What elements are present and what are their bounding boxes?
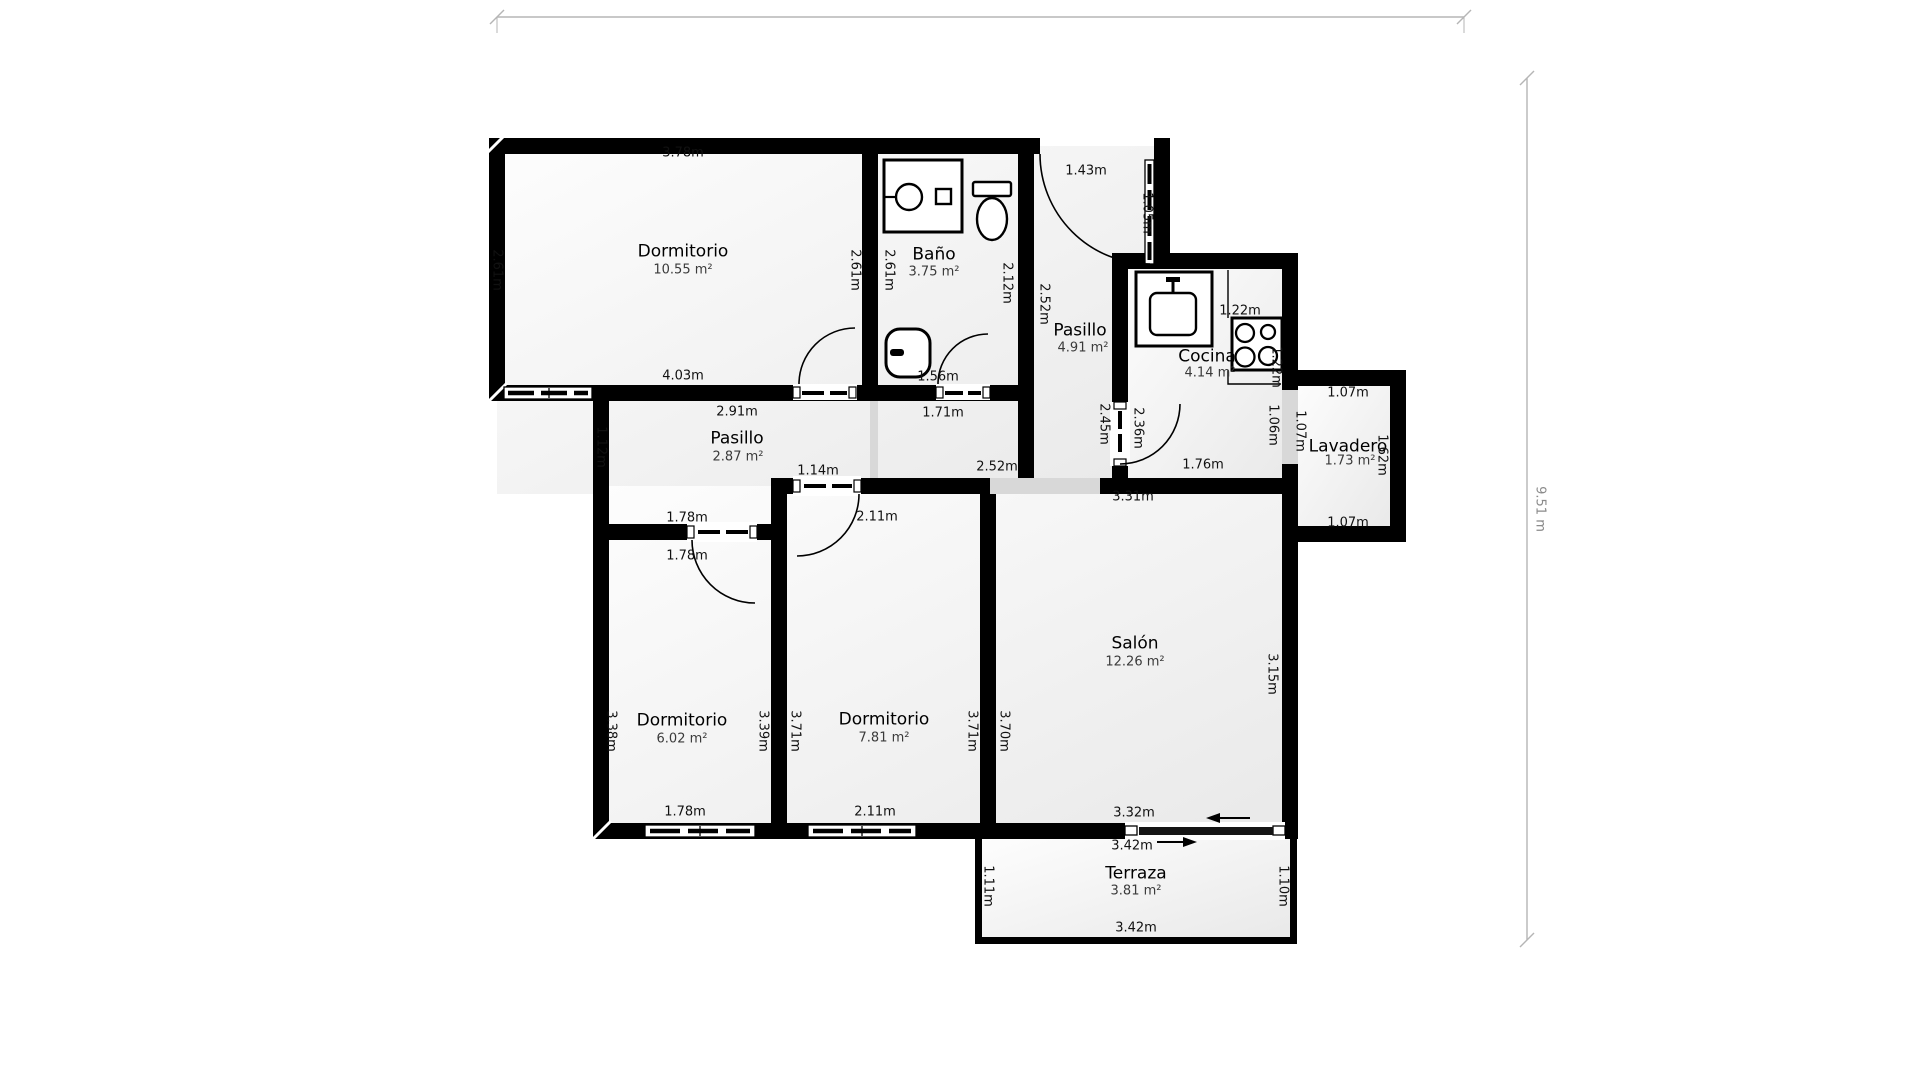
dim-lavadero-bottom: 1.07m	[1327, 517, 1369, 530]
toilet-icon	[973, 182, 1011, 240]
dimension-line-top	[490, 10, 1471, 33]
dim-cocina-right-bottom: 1.06m	[1267, 404, 1280, 446]
dim-pasillo-left: 1.12m	[595, 426, 608, 468]
dim-salon-slider: 3.42m	[1111, 840, 1153, 853]
dim-entrada-left: 2.52m	[1038, 283, 1051, 325]
dim-lavadero-top: 1.07m	[1327, 387, 1369, 400]
dim-dorm3-top: 2.11m	[856, 511, 898, 524]
room-area-bano: 3.75 m²	[909, 266, 960, 279]
room-name-dorm3: Dormitorio	[839, 712, 930, 729]
dim-entrada-top: 1.43m	[1065, 165, 1107, 178]
room-area-terraza: 3.81 m²	[1111, 885, 1162, 898]
dim-dorm-principal-bottom: 4.03m	[662, 370, 704, 383]
room-area-lavadero: 1.73 m²	[1325, 455, 1376, 468]
room-area-entrada: 4.91 m²	[1058, 342, 1109, 355]
dim-cocina-left: 2.36m	[1132, 407, 1145, 449]
dim-bano-right: 2.12m	[1001, 262, 1014, 304]
room-name-cocina: Cocina	[1178, 349, 1236, 366]
dim-salon-opening: 2.52m	[976, 461, 1018, 474]
dim-corridor-bano: 1.71m	[922, 407, 964, 420]
room-name-dorm-principal: Dormitorio	[638, 244, 729, 261]
dim-pasillo-door-b: 1.78m	[666, 512, 708, 525]
dim-dorm3-bottom: 2.11m	[854, 806, 896, 819]
dim-dorm2-left: 3.38m	[605, 710, 618, 752]
dim-dorm-principal-top: 3.78m	[662, 147, 704, 160]
room-name-pasillo: Pasillo	[710, 431, 763, 448]
room-area-dorm-principal: 10.55 m²	[653, 264, 712, 277]
dim-pasillo-top: 2.91m	[716, 406, 758, 419]
room-name-salon: Salón	[1111, 636, 1158, 653]
room-area-dorm2: 6.02 m²	[657, 733, 708, 746]
dim-bano-left: 2.61m	[883, 249, 896, 291]
dim-terraza-right: 1.10m	[1277, 865, 1290, 907]
room-name-bano: Baño	[912, 247, 955, 264]
room-area-pasillo: 2.87 m²	[713, 451, 764, 464]
room-area-dorm3: 7.81 m²	[859, 732, 910, 745]
window-dorm-3	[808, 825, 916, 837]
room-name-entrada: Pasillo	[1053, 323, 1106, 340]
dim-pasillo-door-c: 1.14m	[797, 465, 839, 478]
dim-cocina-right-top: 1.22m	[1270, 346, 1283, 388]
dim-dorm2-bottom: 1.78m	[664, 806, 706, 819]
dim-dorm-principal-right: 2.61m	[849, 249, 862, 291]
dim-dorm3-right: 3.71m	[966, 710, 979, 752]
room-area-salon: 12.26 m²	[1105, 656, 1164, 669]
dim-salon-top: 3.31m	[1112, 491, 1154, 504]
room-name-terraza: Terraza	[1105, 866, 1166, 883]
dim-salon-right: 3.15m	[1266, 653, 1279, 695]
dim-bano-door: 1.56m	[917, 371, 959, 384]
floor-plan-drawing	[0, 0, 1920, 1080]
dim-salon-bottom: 3.32m	[1113, 807, 1155, 820]
dim-dorm2-right: 3.39m	[757, 710, 770, 752]
dim-overall-height: 9.51 m	[1534, 486, 1547, 532]
bathroom-vanity-icon	[884, 160, 962, 232]
dim-lavadero-right: 1.62m	[1376, 434, 1389, 476]
dim-entrada-door: 1.05m	[1141, 192, 1154, 234]
dim-dorm2-top: 1.78m	[666, 550, 708, 563]
dim-entrada-right: 2.45m	[1098, 403, 1111, 445]
floor-plan-page: 3.78m 2.61m Dormitorio 10.55 m² 4.03m 2.…	[0, 0, 1920, 1080]
dim-dorm-principal-left: 2.61m	[491, 249, 504, 291]
dim-dorm3-left: 3.71m	[789, 710, 802, 752]
dim-cocina-bottom: 1.76m	[1182, 459, 1224, 472]
dim-salon-left: 3.70m	[998, 710, 1011, 752]
dim-lavadero-left: 1.07m	[1294, 410, 1307, 452]
room-name-dorm2: Dormitorio	[637, 713, 728, 730]
window-dorm-2	[645, 825, 755, 837]
dim-cocina-sink: 1.22m	[1219, 305, 1261, 318]
window-dorm-principal	[504, 387, 592, 399]
kitchen-sink-icon	[1136, 272, 1212, 346]
dim-terraza-bottom: 3.42m	[1115, 922, 1157, 935]
room-area-cocina: 4.14 m²	[1185, 367, 1236, 380]
dim-terraza-left: 1.11m	[982, 865, 995, 907]
